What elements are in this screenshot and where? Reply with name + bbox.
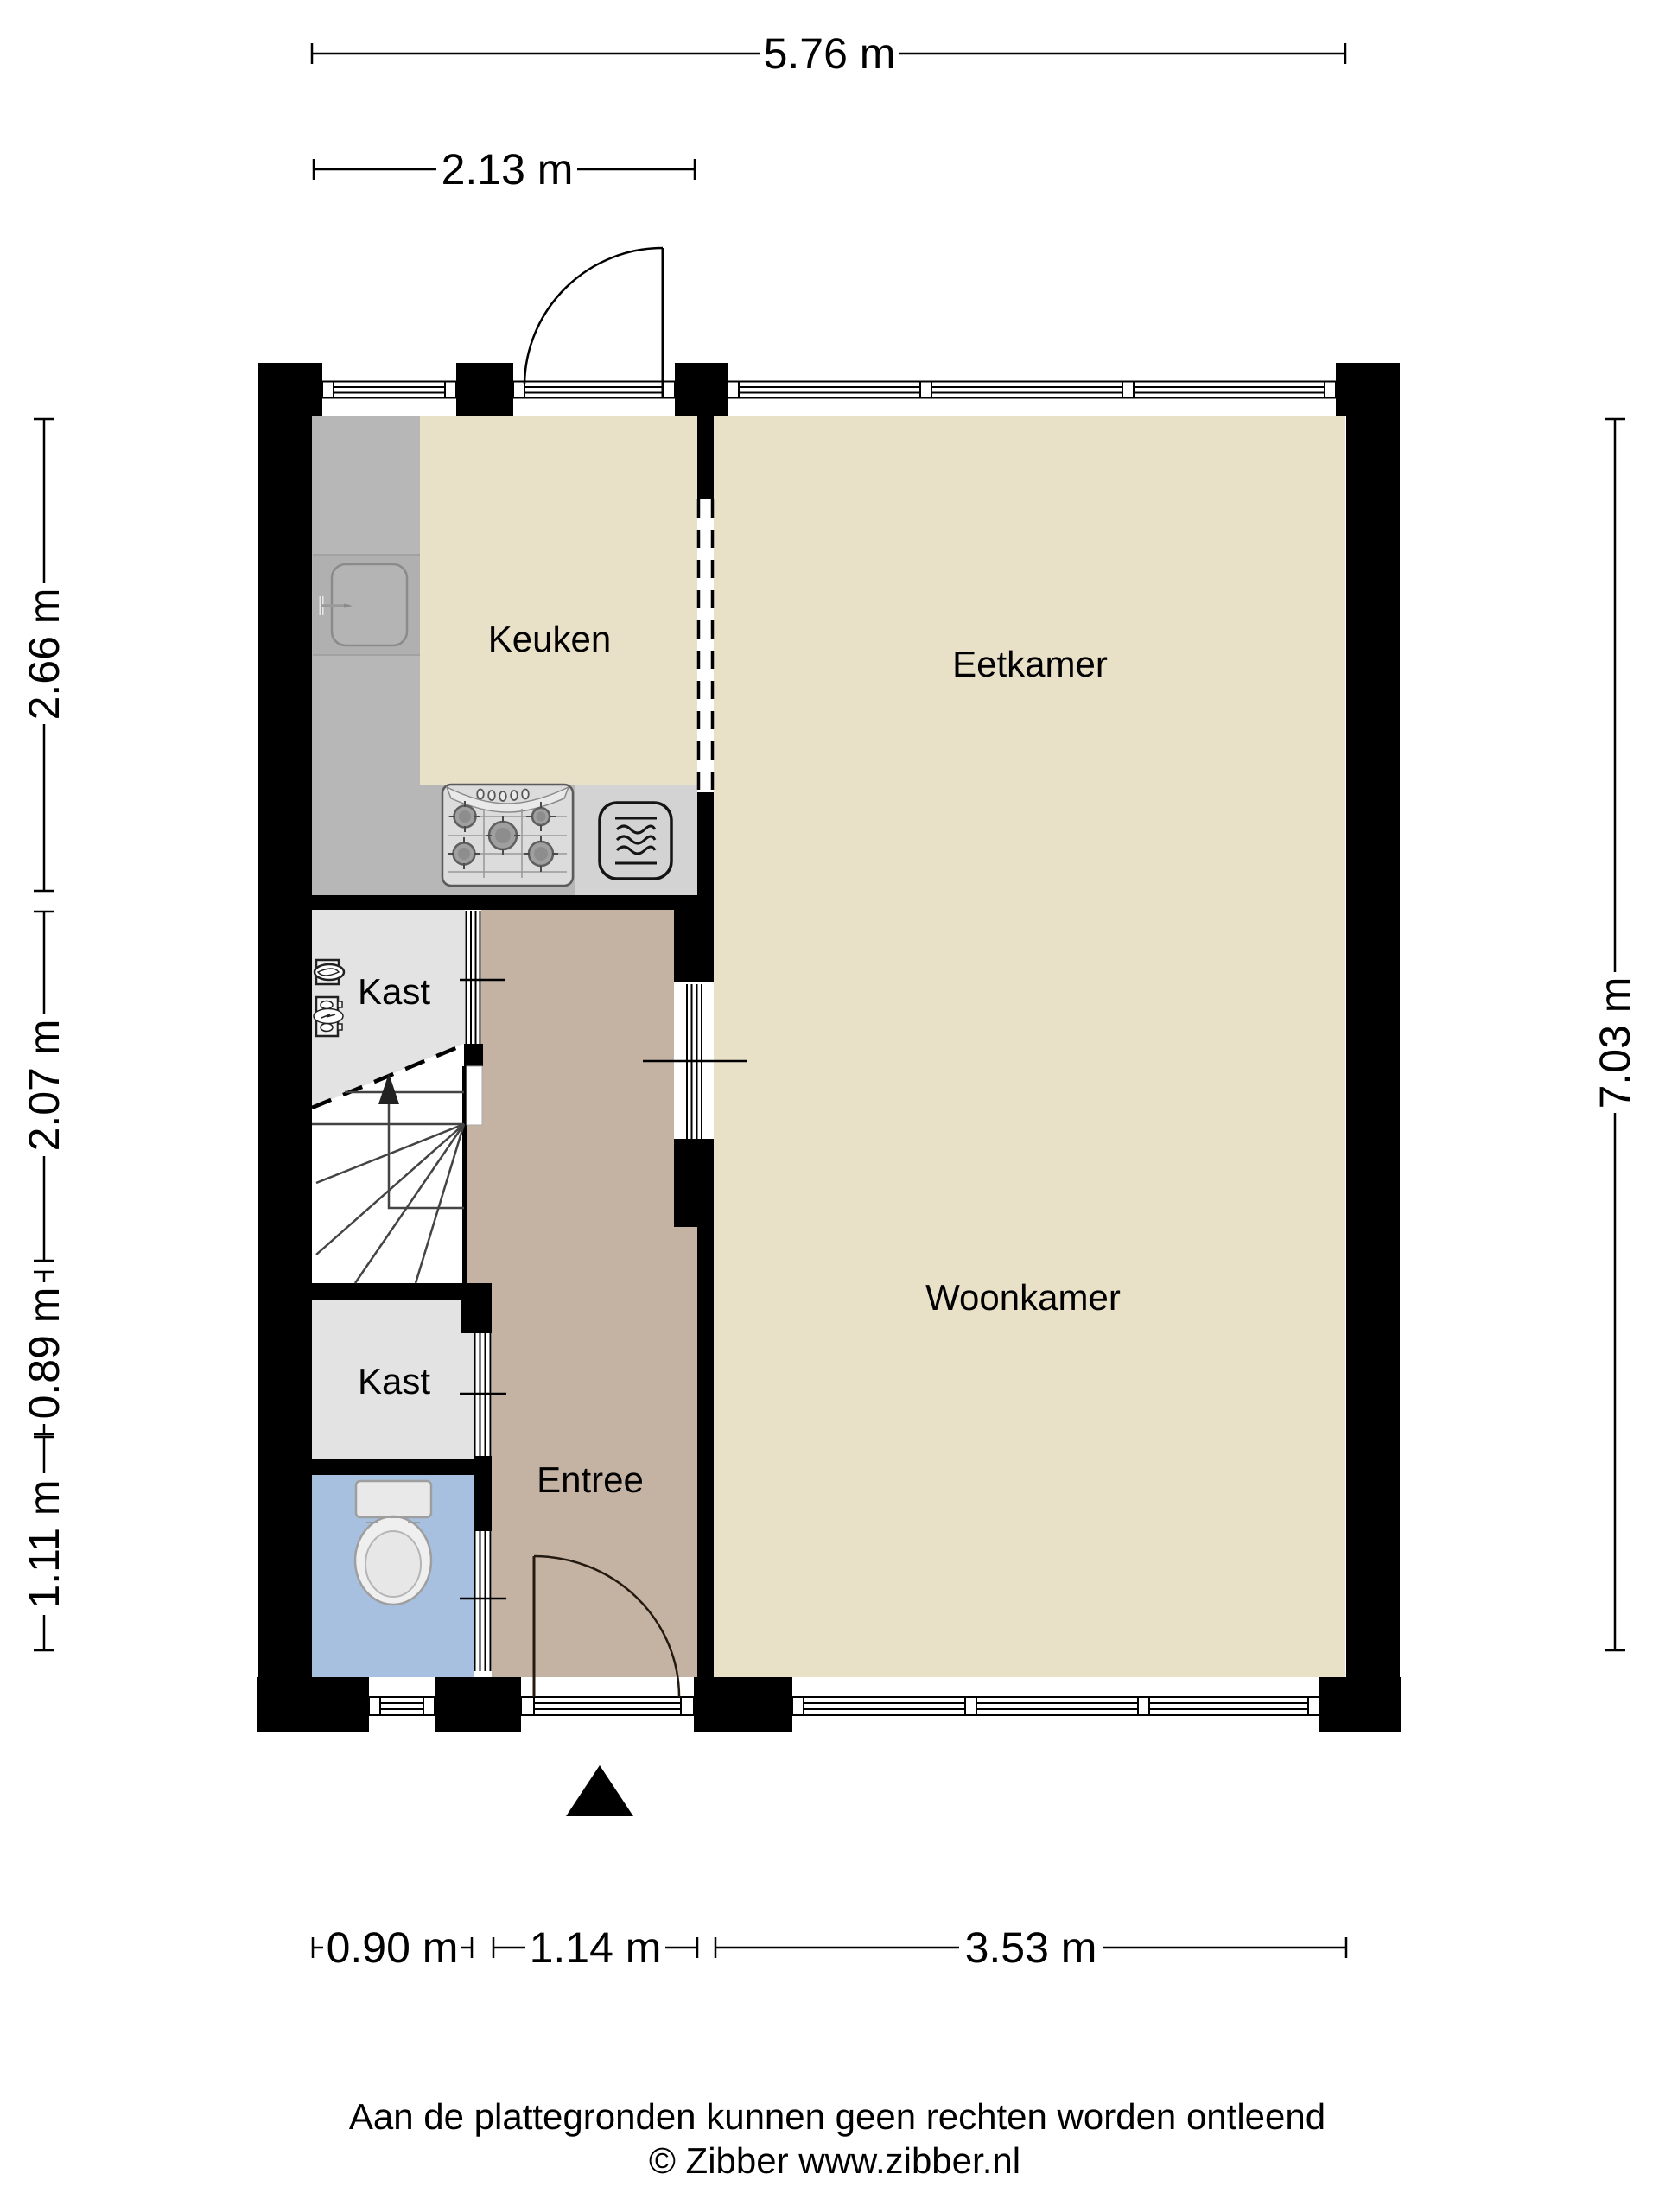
svg-text:Woonkamer: Woonkamer bbox=[925, 1277, 1121, 1318]
svg-text:1.11 m: 1.11 m bbox=[20, 1479, 68, 1608]
svg-text:0.90 m: 0.90 m bbox=[327, 1923, 459, 1972]
svg-text:7.03 m: 7.03 m bbox=[1591, 977, 1639, 1109]
svg-text:Keuken: Keuken bbox=[488, 619, 611, 659]
svg-text:Kast: Kast bbox=[358, 1361, 430, 1402]
svg-text:5.76 m: 5.76 m bbox=[764, 29, 896, 78]
svg-text:Entree: Entree bbox=[537, 1459, 644, 1500]
svg-text:2.07 m: 2.07 m bbox=[20, 1020, 68, 1152]
svg-text:1.14 m: 1.14 m bbox=[530, 1923, 662, 1972]
svg-text:Aan de plattegronden kunnen ge: Aan de plattegronden kunnen geen rechten… bbox=[349, 2096, 1325, 2137]
svg-text:2.66 m: 2.66 m bbox=[20, 588, 68, 721]
svg-text:0.89 m: 0.89 m bbox=[20, 1287, 68, 1420]
svg-text:Eetkamer: Eetkamer bbox=[952, 644, 1108, 684]
svg-text:© Zibber www.zibber.nl: © Zibber www.zibber.nl bbox=[649, 2140, 1020, 2181]
svg-text:2.13 m: 2.13 m bbox=[442, 145, 574, 194]
svg-text:3.53 m: 3.53 m bbox=[965, 1923, 1097, 1972]
svg-text:Kast: Kast bbox=[358, 971, 430, 1012]
